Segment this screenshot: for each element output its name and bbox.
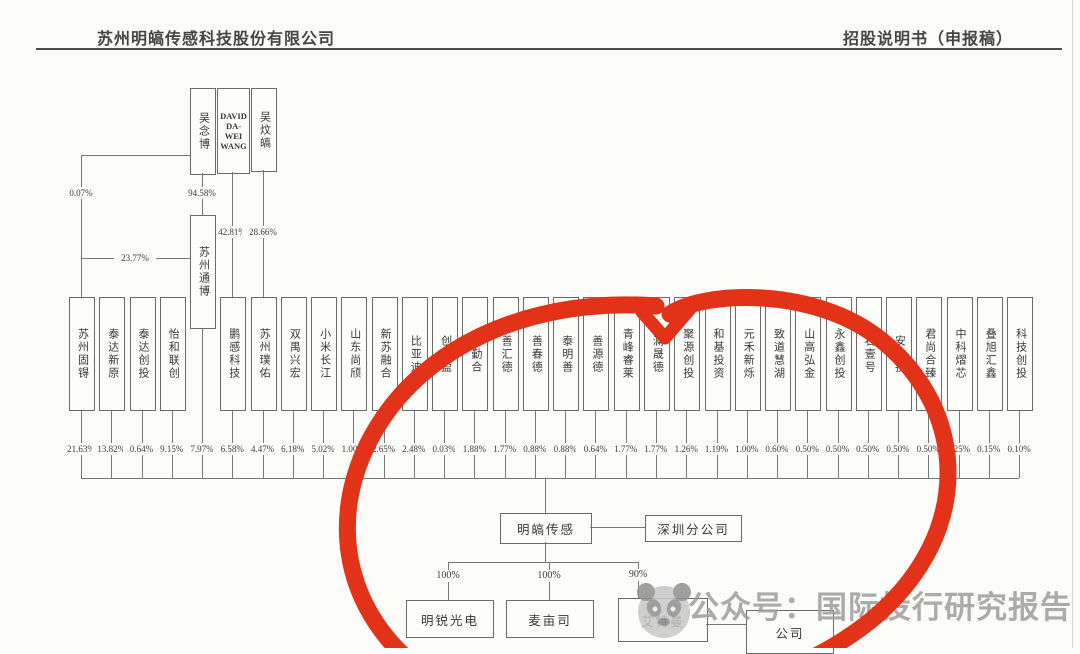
- watermark-text: 公众号：国际投行研究报告: [688, 582, 1072, 627]
- shareholder-box: 君尚合臻: [916, 297, 942, 411]
- shareholder-box: 小米长江: [311, 297, 337, 411]
- connector-line: [448, 562, 638, 563]
- page-edge-line: [1072, 0, 1073, 648]
- holding-pct-label: 0.07%: [62, 187, 100, 199]
- shareholder-box: 叠旭汇鑫: [977, 297, 1003, 411]
- connector-line: [81, 155, 190, 156]
- subsidiary-pct-label: 100%: [428, 570, 468, 582]
- shareholder-box: 永鑫创投: [826, 297, 852, 411]
- founder-box-wu-nianbo: 吴念博: [190, 88, 216, 175]
- shareholder-box: 善春德: [523, 297, 549, 411]
- shareholder-box: 山高弘金: [795, 297, 821, 411]
- shareholder-box: 怡和联创: [160, 297, 186, 411]
- connector-line: [545, 478, 546, 513]
- shareholder-box: 双禺兴宏: [281, 297, 307, 411]
- connector-line: [202, 327, 203, 478]
- shareholder-box: 泰达创投: [130, 297, 156, 411]
- holding-pct-label: 23.77%: [114, 252, 156, 264]
- shareholder-bus-line: [81, 478, 1019, 479]
- shareholder-box: 澜晟德: [644, 297, 670, 411]
- shareholder-box: 和基投资: [705, 297, 731, 411]
- connector-line: [81, 155, 82, 297]
- shareholder-box: 比亚迪: [402, 297, 428, 411]
- shareholder-box: 山东尚颀: [341, 297, 367, 411]
- doc-type-label: 招股说明书（申报稿）: [843, 25, 1013, 49]
- shareholder-box: 苏州璞佑: [251, 297, 277, 411]
- panda-logo: [634, 578, 694, 640]
- holding-pct-label: 94.58%: [181, 187, 223, 199]
- header-rule: [36, 48, 1062, 50]
- shareholder-box: 善源德: [583, 297, 609, 411]
- shareholder-box: 聚源创投: [674, 297, 700, 411]
- shareholder-box: 洽勤合: [462, 297, 488, 411]
- shareholder-box: 创启盈: [432, 297, 458, 411]
- shareholder-box: 致道慧湖: [765, 297, 791, 411]
- connector-line: [545, 542, 546, 562]
- shareholder-box: 中科熠芯: [947, 297, 973, 411]
- shareholder-box: 善汇德: [493, 297, 519, 411]
- shareholder-box: 青峰睿莱: [614, 297, 640, 411]
- subsidiary-box: 明锐光电: [406, 600, 494, 638]
- founder-box-david-wang: DAVID DA-WEI WANG: [217, 88, 250, 174]
- shareholder-box: 苏州固锝: [69, 297, 95, 411]
- shareholder-box: 元禾新烁: [735, 297, 761, 411]
- branch-box: 深圳分公司: [645, 515, 742, 542]
- shareholder-box: 苏州通博: [190, 215, 216, 329]
- shareholder-box: 安芯投: [886, 297, 912, 411]
- shareholder-box: 鹏感科技: [220, 297, 246, 411]
- page-title: 苏州明皜传感科技股份有限公司: [97, 25, 335, 49]
- subsidiary-pct-label: 100%: [529, 570, 569, 582]
- subsidiary-box: 麦亩司: [506, 600, 594, 638]
- founder-box-wu-wenhao: 吴炆皜: [251, 88, 277, 172]
- shareholder-pct-label: 0.10%: [1000, 443, 1038, 455]
- shareholder-box: 泰明善: [553, 297, 579, 411]
- company-box: 明皜传感: [500, 513, 592, 544]
- shareholder-box: 科技创投: [1007, 297, 1033, 411]
- connector-line: [590, 527, 645, 528]
- shareholder-box: 石壹号: [856, 297, 882, 411]
- shareholder-box: 新苏融合: [372, 297, 398, 411]
- shareholder-box: 泰达新原: [99, 297, 125, 411]
- holding-pct-label: 28.66%: [242, 226, 284, 238]
